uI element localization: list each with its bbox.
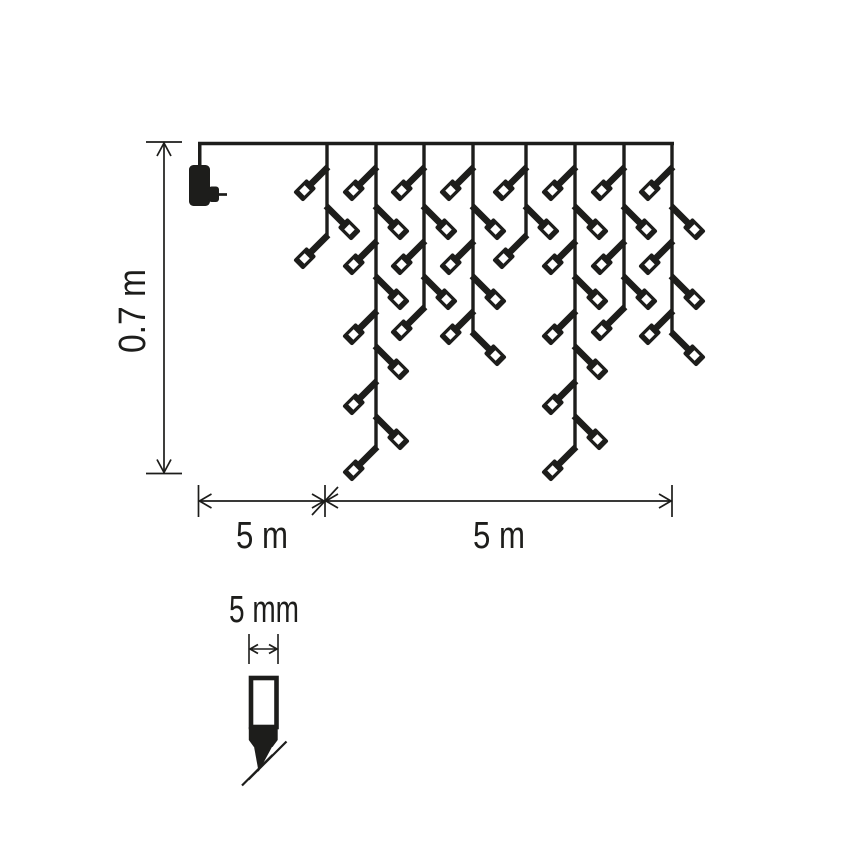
- light-drop: [293, 144, 361, 270]
- diagram-canvas: 0.7 m 5 m 5 m 5 mm: [0, 0, 868, 868]
- bulb-glass-outline: [251, 678, 277, 727]
- diagram-artwork: [146, 142, 706, 786]
- light-drop: [590, 144, 658, 342]
- length-dimension: [199, 485, 673, 517]
- led-bulb-icon: [390, 302, 430, 342]
- label-lead-length: 5 m: [236, 515, 288, 557]
- plug-tab: [209, 187, 220, 203]
- top-wire: [200, 144, 674, 167]
- icicle-lights-technical-diagram: 0.7 m 5 m 5 m 5 mm: [0, 0, 868, 868]
- led-bulb-detail: [242, 678, 287, 786]
- power-plug-icon: [189, 165, 227, 206]
- light-drops: [293, 144, 706, 482]
- main-wire: [200, 144, 674, 167]
- label-bulb-width: 5 mm: [229, 589, 299, 631]
- bulb-width-dimension: [249, 634, 278, 664]
- light-drop: [390, 144, 458, 342]
- light-drop: [492, 144, 560, 270]
- led-bulb-icon: [467, 327, 507, 367]
- led-bulb-icon: [541, 442, 581, 482]
- led-bulb-icon: [342, 442, 382, 482]
- label-drop-height: 0.7 m: [112, 269, 154, 353]
- bulb-neck: [249, 727, 278, 747]
- plug-body: [189, 165, 210, 206]
- led-bulb-icon: [666, 327, 706, 367]
- label-lit-length: 5 m: [473, 515, 525, 557]
- led-bulb-icon: [293, 230, 333, 270]
- led-bulb-icon: [590, 302, 630, 342]
- light-drop: [439, 144, 507, 367]
- light-drop: [638, 144, 706, 367]
